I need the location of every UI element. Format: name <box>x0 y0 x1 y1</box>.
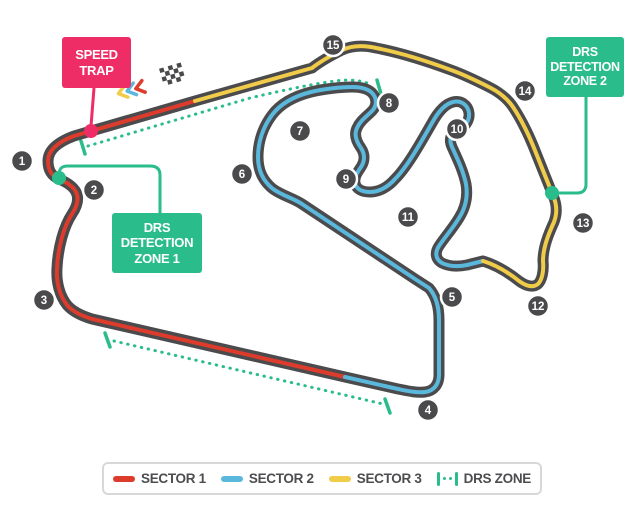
legend-label: SECTOR 2 <box>249 471 314 486</box>
corner-marker-4: 4 <box>417 399 439 421</box>
drs-zone-tick <box>385 399 390 413</box>
drs-detection-zone1-label: DRS DETECTION ZONE 1 <box>112 213 202 273</box>
svg-text:4: 4 <box>425 405 432 417</box>
drs2-connector <box>552 96 586 193</box>
svg-text:13: 13 <box>577 218 590 230</box>
corner-marker-2: 2 <box>83 179 105 201</box>
svg-text:2: 2 <box>91 185 97 197</box>
legend-label: DRS ZONE <box>464 471 531 486</box>
legend-item-drs-zone: DRS ZONE <box>437 471 531 486</box>
svg-text:3: 3 <box>41 295 47 307</box>
svg-text:8: 8 <box>386 98 393 110</box>
svg-text:1: 1 <box>19 156 26 168</box>
svg-text:9: 9 <box>343 174 349 186</box>
drs-zone-icon <box>437 472 458 486</box>
corner-marker-9: 9 <box>335 168 357 190</box>
corner-marker-3: 3 <box>33 289 55 311</box>
corner-marker-11: 11 <box>397 206 419 228</box>
sector2-swatch <box>221 476 243 482</box>
corner-marker-14: 14 <box>514 80 536 102</box>
svg-text:15: 15 <box>327 40 340 52</box>
corner-marker-5: 5 <box>441 286 463 308</box>
legend-label: SECTOR 3 <box>357 471 422 486</box>
legend-item-sector3: SECTOR 3 <box>329 471 422 486</box>
svg-text:5: 5 <box>449 292 456 304</box>
drs-zone-tick <box>81 141 85 154</box>
finish-flag-icon <box>159 62 186 86</box>
svg-text:7: 7 <box>297 126 303 138</box>
svg-text:6: 6 <box>239 169 245 181</box>
corner-marker-8: 8 <box>378 92 400 114</box>
corner-marker-6: 6 <box>231 163 253 185</box>
circuit-map: 1 2 3 4 5 6 7 8 9 10 11 12 13 14 15 SPEE… <box>0 0 638 515</box>
legend: SECTOR 1 SECTOR 2 SECTOR 3 DRS ZONE <box>102 462 542 495</box>
corner-marker-15: 15 <box>322 34 344 56</box>
legend-item-sector1: SECTOR 1 <box>113 471 206 486</box>
drs2-detection-marker <box>545 186 559 200</box>
speed-trap-connector <box>91 88 94 126</box>
svg-text:11: 11 <box>402 212 415 224</box>
svg-text:12: 12 <box>532 301 545 313</box>
speed-trap-label: SPEED TRAP <box>62 37 131 88</box>
svg-text:14: 14 <box>519 86 532 98</box>
sector1-swatch <box>113 476 135 482</box>
drs-detection-zone2-label: DRS DETECTION ZONE 2 <box>546 37 624 97</box>
legend-item-sector2: SECTOR 2 <box>221 471 314 486</box>
chevron-red <box>134 81 145 95</box>
corner-marker-12: 12 <box>527 295 549 317</box>
legend-label: SECTOR 1 <box>141 471 206 486</box>
corner-marker-10: 10 <box>446 118 468 140</box>
drs-zone-tick <box>105 333 110 347</box>
sector3-swatch <box>329 476 351 482</box>
corner-marker-7: 7 <box>289 120 311 142</box>
svg-text:10: 10 <box>451 124 464 136</box>
corner-marker-1: 1 <box>11 150 33 172</box>
speed-trap-marker <box>84 124 98 138</box>
corner-marker-13: 13 <box>572 212 594 234</box>
drs1-detection-marker <box>52 171 66 185</box>
